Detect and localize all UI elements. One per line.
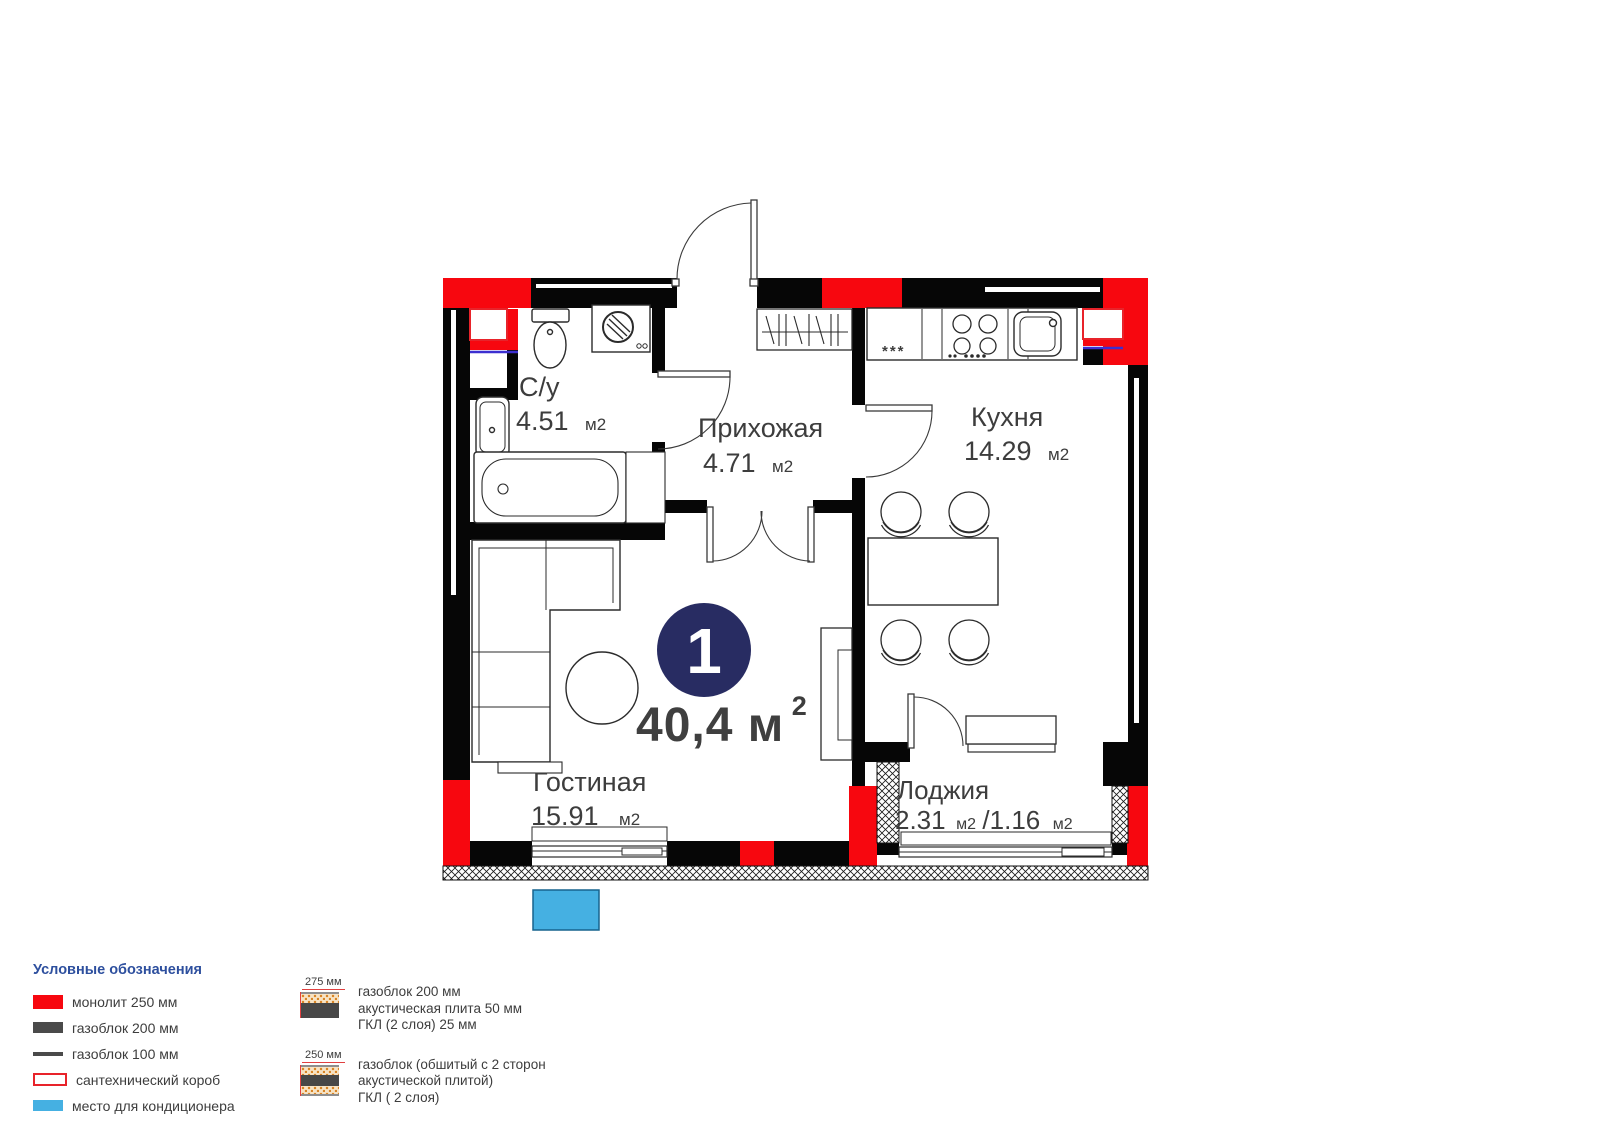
wall-type-275-swatch-icon (300, 992, 339, 1018)
svg-text:Кухня: Кухня (971, 402, 1043, 432)
unit-number: 1 (686, 615, 722, 687)
washing-machine (592, 305, 650, 352)
ac-place-swatch-icon (33, 1100, 63, 1111)
unit-number-badge: 1 (657, 603, 751, 697)
legend: Условные обозначения монолит 250 мм газо… (33, 962, 235, 1123)
room-label-kitchen: Кухня 14.29 м2 (964, 402, 1069, 466)
loggia-window (899, 832, 1112, 857)
legend-title: Условные обозначения (33, 962, 235, 978)
coffee-table (566, 652, 638, 724)
kitchen-door (866, 405, 932, 477)
room-label-hallway: Прихожая 4.71 м2 (698, 413, 823, 478)
loggia-cabinet (966, 716, 1056, 744)
freezer-mark: *** (882, 343, 906, 360)
room-label-bathroom: С/у 4.51 м2 (516, 372, 606, 436)
svg-text:15.91 м2: 15.91 м2 (531, 801, 640, 831)
monolith-swatch-icon (33, 995, 63, 1009)
svg-text:4.71 м2: 4.71 м2 (703, 448, 793, 478)
entrance-door (672, 200, 758, 286)
svg-text:2.31 м2 /1.16: 2.31 м2 /1.16 м2 (895, 805, 1073, 835)
bathroom-sink (476, 397, 509, 457)
gasblock-200-swatch-icon (33, 1022, 63, 1033)
legend-item-gasblock-100: газоблок 100 мм (33, 1045, 235, 1062)
svg-text:Прихожая: Прихожая (698, 413, 823, 443)
legend-item-monolith: монолит 250 мм (33, 993, 235, 1010)
svg-text:С/у: С/у (519, 372, 560, 402)
legend-item-ac-place: место для кондиционера (33, 1097, 235, 1114)
legend-item-gasblock-200: газоблок 200 мм (33, 1019, 235, 1036)
gasblock-100-swatch-icon (33, 1052, 63, 1056)
wall-type-legend: 275 мм газоблок 200 мм акустическая плит… (300, 972, 546, 1117)
living-room-double-door (707, 507, 814, 562)
kitchen-sink (1014, 312, 1061, 356)
floor-plan-page: *** 1 (0, 0, 1600, 1131)
wardrobe (757, 309, 852, 350)
wall-type-250-dimension: 250 мм (302, 1049, 345, 1063)
svg-text:14.29 м2: 14.29 м2 (964, 436, 1069, 466)
wall-type-250-swatch-icon (300, 1065, 339, 1096)
svg-text:4.51 м2: 4.51 м2 (516, 406, 606, 436)
living-room-window (532, 827, 667, 857)
wall-type-275-dimension: 275 мм (302, 976, 345, 990)
wall-type-275: 275 мм газоблок 200 мм акустическая плит… (300, 972, 546, 1034)
toilet (532, 309, 569, 368)
plumbing-duct-swatch-icon (33, 1073, 67, 1086)
room-label-living: Гостиная 15.91 м2 (531, 767, 646, 831)
ac-place-marker (533, 890, 599, 930)
floor-plan: *** 1 (0, 0, 1600, 1131)
svg-text:Гостиная: Гостиная (533, 767, 646, 797)
legend-item-plumbing-duct: сантехнический короб (33, 1071, 235, 1088)
living-room-cabinet (821, 628, 852, 760)
bathtub (474, 452, 665, 523)
loggia-door (908, 694, 963, 748)
loggia-kitchen-window (968, 744, 1055, 752)
room-label-loggia: Лоджия 2.31 м2 /1.16 м2 (895, 775, 1073, 835)
wall-type-250: 250 мм газоблок (обшитый с 2 сторон акус… (300, 1045, 546, 1107)
dining-table (868, 538, 998, 605)
svg-text:Лоджия: Лоджия (897, 775, 989, 805)
total-area: 40,4 м 2 (636, 691, 807, 752)
